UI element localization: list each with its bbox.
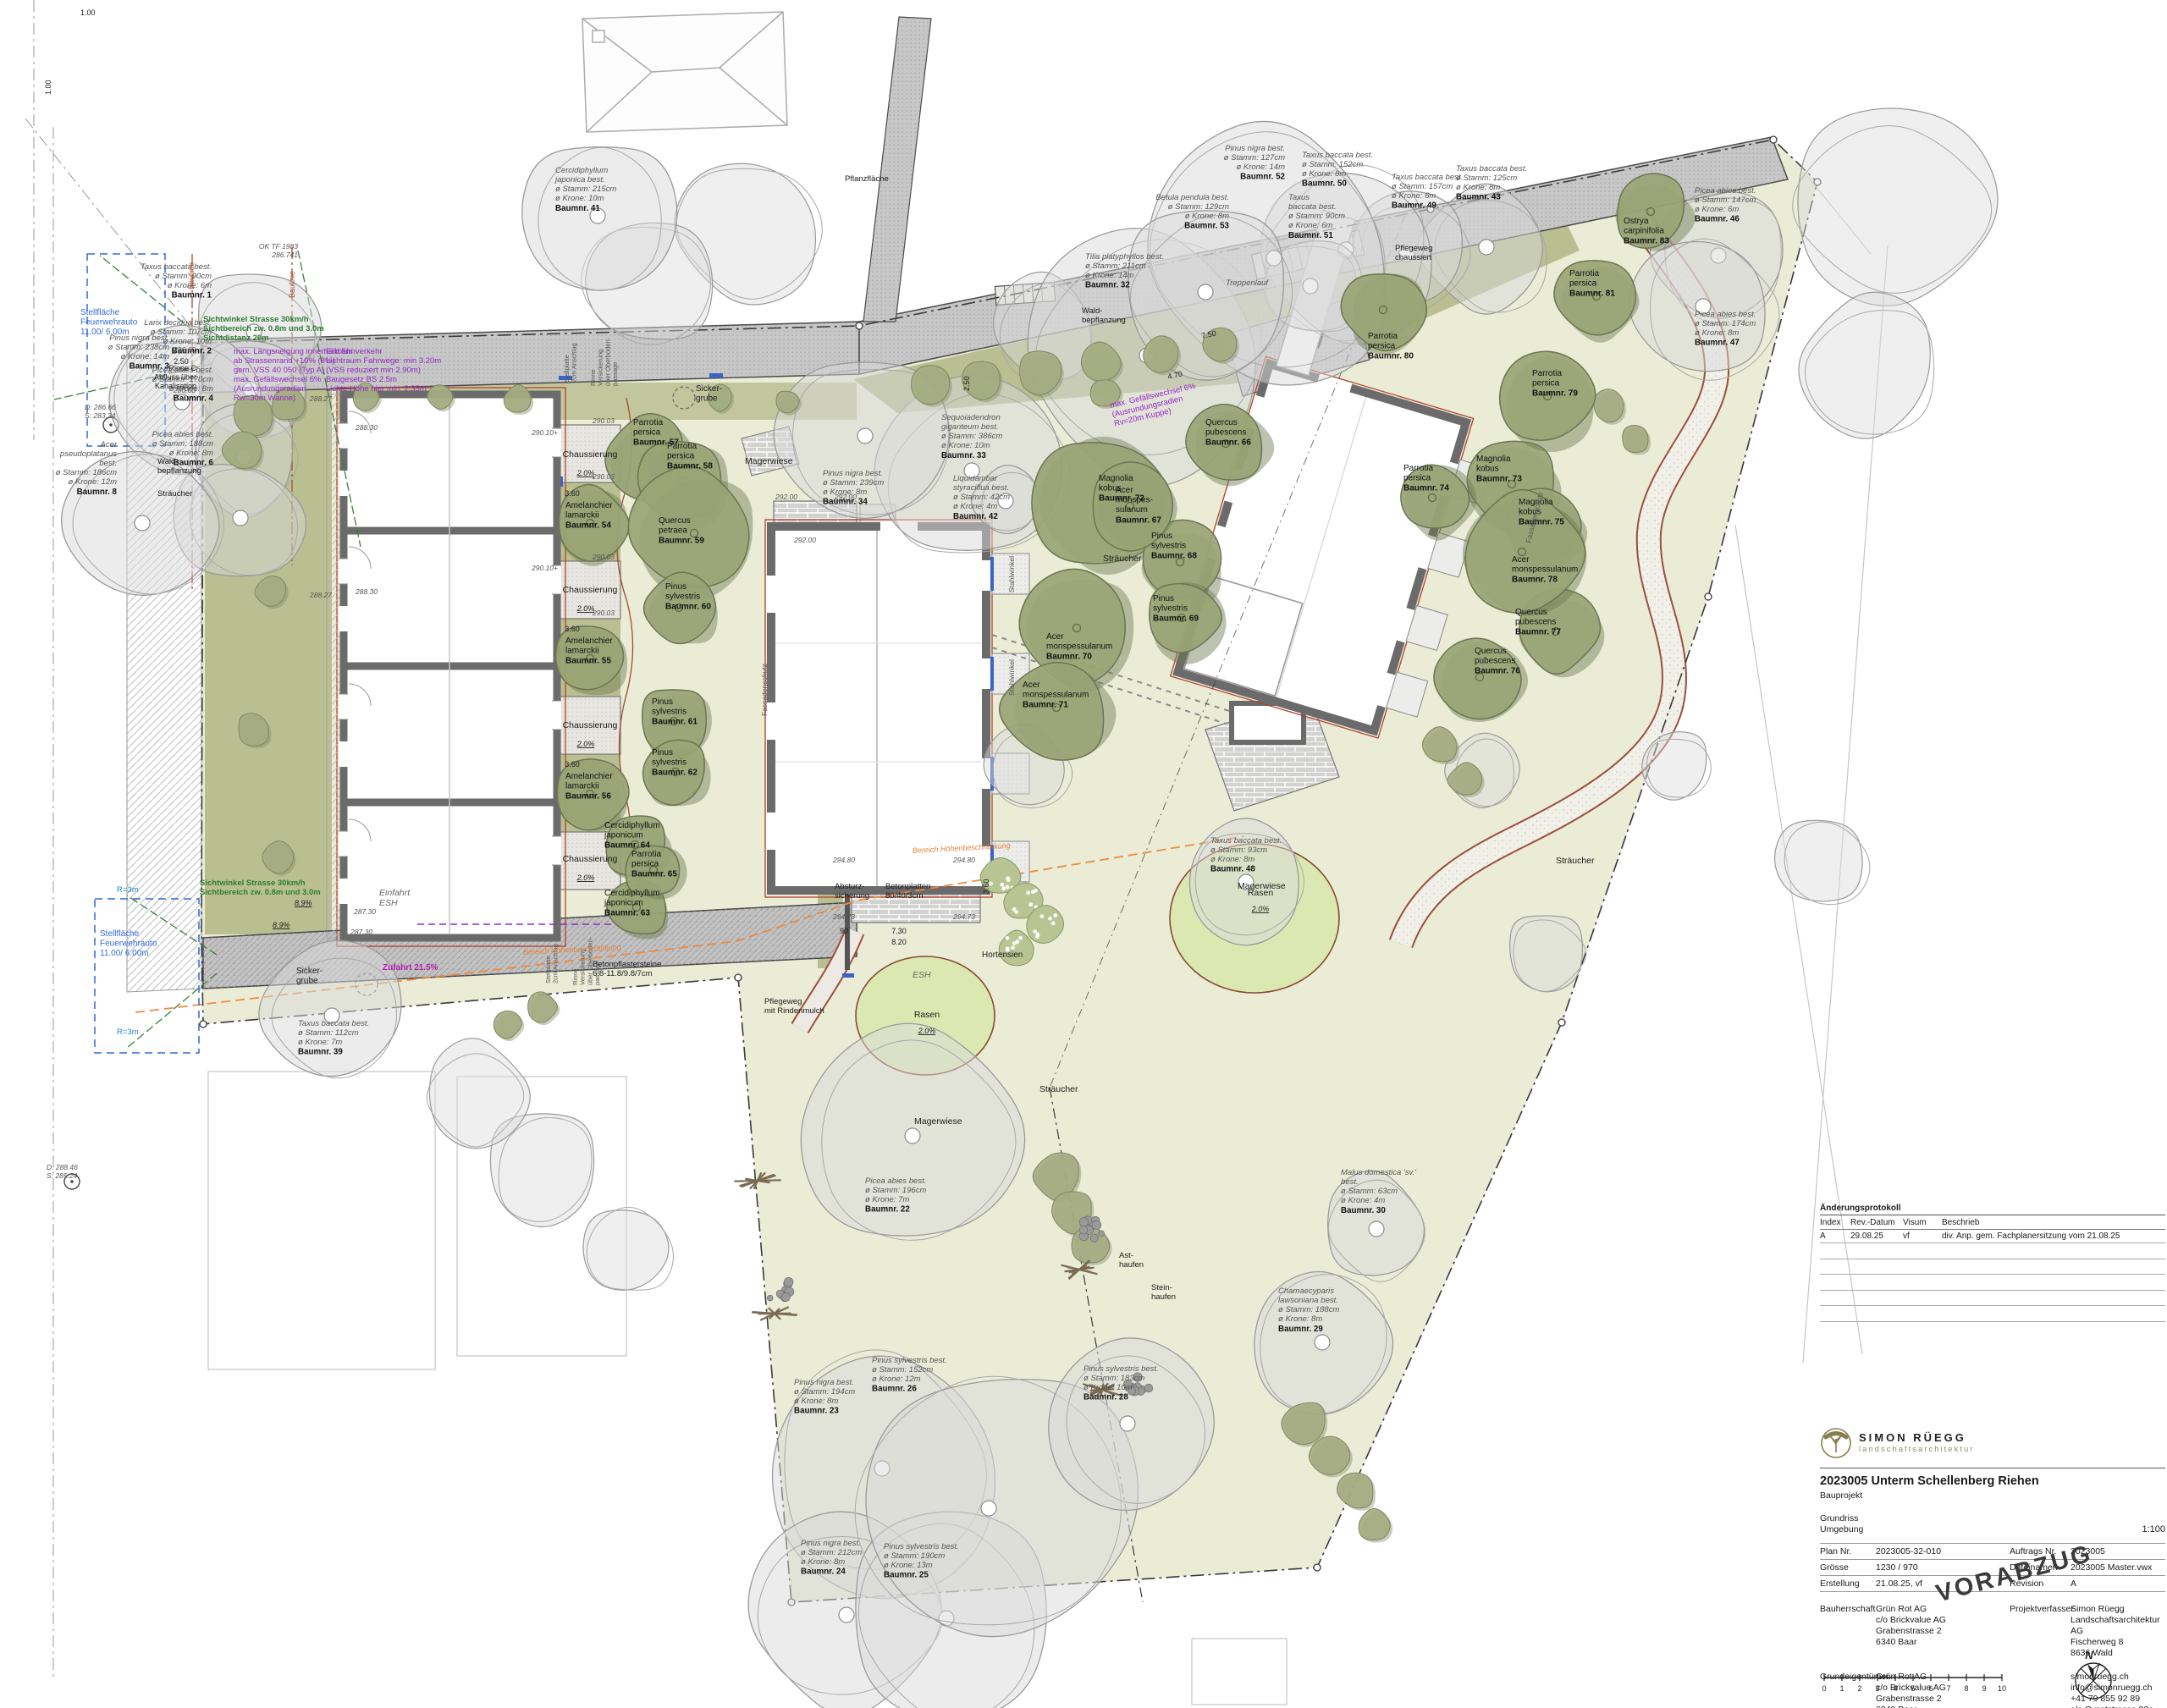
tree-number: Baumnr. 22	[865, 1205, 910, 1215]
meta-row: Plan Nr.2023005-32-010 Auftrags Nr.20230…	[1820, 1543, 2165, 1559]
annotation: R=3m	[117, 1028, 139, 1037]
scale-bar: 012345678910	[1820, 1672, 2015, 1694]
scale-tick-label: 1	[1839, 1684, 1844, 1693]
drawing-scale: 1:100	[2142, 1524, 2165, 1536]
tree-number: Baumnr. 46	[1695, 215, 1740, 224]
tree-number: Baumnr. 8	[77, 488, 118, 497]
annotation: 2.0%	[1251, 905, 1270, 913]
tree-label: Parrotiapersica	[1368, 332, 1398, 351]
tree-number: Baumnr. 23	[794, 1407, 839, 1416]
annotation: 2.0%	[576, 740, 595, 748]
existing-tree-crown	[1793, 108, 1998, 306]
tree-number: Baumnr. 69	[1153, 614, 1199, 624]
scale-tick-label: 4	[1893, 1684, 1897, 1693]
annotation: 287.30	[350, 928, 372, 936]
tree-label: Quercuspetraea	[659, 516, 691, 536]
tree-number: Baumnr. 1	[172, 291, 212, 300]
annotation: 1.00	[80, 8, 96, 17]
tree-number: Baumnr. 67	[1116, 515, 1161, 525]
annotation: 294.80	[832, 856, 855, 864]
annotation: Sträucher	[1039, 1084, 1078, 1094]
annotation: 292.00	[793, 536, 816, 544]
annotation: 90	[840, 927, 848, 935]
tree-number: Baumnr. 64	[604, 841, 650, 851]
annotation: 3.60	[565, 489, 580, 498]
annotation: 2.50	[962, 376, 971, 391]
existing-tree-crown	[1799, 292, 1934, 438]
tree-label: Parrotiapersica	[1532, 369, 1562, 388]
annotation: Chaussierung	[563, 720, 618, 730]
tree-number: Baumnr. 56	[565, 792, 611, 802]
tree-number: Baumnr. 83	[1624, 237, 1669, 246]
scale-tick-label: 2	[1857, 1684, 1861, 1693]
shrub	[1359, 1508, 1392, 1542]
revision-log-empty-row	[1820, 1291, 2165, 1307]
tree-number: Baumnr. 66	[1205, 438, 1251, 448]
tree-label: Parrotiapersica	[1403, 464, 1433, 483]
revision-log-empty-row	[1820, 1306, 2165, 1322]
site-plan-page: Taxus baccata best.ø Stamm: 90cmø Krone:…	[0, 0, 2167, 1708]
annotation: 290.03	[592, 416, 615, 425]
annotation: 294.80	[952, 856, 975, 864]
tree-number: Baumnr. 43	[1456, 193, 1501, 202]
annotation: Fassadenschutz	[760, 664, 769, 716]
annotation: 287.30	[353, 907, 376, 916]
tree-number: Baumnr. 68	[1151, 552, 1197, 561]
annotation: 286.60	[173, 345, 196, 354]
existing-tree-crown	[1775, 820, 1870, 904]
annotation: Sträucher	[157, 489, 192, 499]
annotation: Chaussierung	[563, 449, 618, 460]
logo: SIMON RÜEGG landschaftsarchitektur	[1820, 1427, 2165, 1459]
revision-log-empty-row	[1820, 1275, 2165, 1291]
annotation: 288.30	[355, 587, 378, 596]
annotation: 3.60	[565, 760, 580, 769]
tree-number: Baumnr. 48	[1210, 865, 1255, 874]
logo-tree-icon	[1820, 1427, 1852, 1459]
building-rowhouses	[327, 388, 565, 946]
annotation: Stahlwinkel	[1007, 556, 1016, 592]
svg-text:N: N	[2085, 1649, 2093, 1661]
tree-number: Baumnr. 70	[1046, 653, 1092, 662]
tree-number: Baumnr. 75	[1519, 518, 1564, 527]
tree-number: Baumnr. 73	[1476, 475, 1522, 484]
tree-number: Baumnr. 65	[631, 870, 677, 879]
annotation: Chaussierung	[563, 854, 618, 864]
tree-number: Baumnr. 25	[884, 1571, 929, 1580]
scale-tick-label: 8	[1964, 1684, 1968, 1693]
tree-number: Baumnr. 55	[565, 657, 611, 666]
annotation: ESH	[913, 970, 931, 980]
revision-log-row: A 29.08.25 vf div. Anp. gem. Fachplaners…	[1820, 1230, 2165, 1244]
tree-number: Baumnr. 30	[1341, 1206, 1386, 1215]
tree-number: Baumnr. 4	[174, 394, 214, 404]
scale-tick-label: 0	[1822, 1684, 1826, 1693]
tree-number: Baumnr. 41	[555, 204, 600, 213]
annotation: 1.00	[44, 80, 52, 95]
shrub	[494, 1011, 524, 1041]
annotation: Magerwiese	[914, 1116, 962, 1127]
annotation: D: 288.46S: 285.24	[47, 1163, 78, 1180]
tree-number: Baumnr. 72	[1099, 494, 1144, 504]
tree-label: Pinus nigra best.ø Stamm: 238cmø Krone: …	[108, 333, 169, 361]
annotation: Treppenlauf	[1226, 278, 1269, 288]
tree-number: Baumnr. 52	[1240, 173, 1285, 182]
annotation: Stein-haufen	[1151, 1283, 1176, 1302]
project-phase: Bauprojekt	[1820, 1490, 2165, 1501]
tree-number: Baumnr. 79	[1532, 389, 1578, 399]
annotation: Chaussierung	[563, 585, 618, 595]
tree-label: Parrotiapersica	[667, 442, 697, 461]
annotation: Betonpflastersteine6.8-11.8/9.8/7cm	[593, 960, 661, 978]
annotation: 3.60	[982, 879, 990, 894]
tree-number: Baumnr. 54	[565, 521, 611, 531]
drawing-title: Grundriss	[1820, 1513, 1863, 1524]
tree-number: Baumnr. 76	[1475, 667, 1520, 676]
annotation: 294.73	[952, 912, 975, 921]
annotation: Baulinie	[187, 262, 196, 289]
annotation: 8.9%	[273, 921, 290, 929]
annotation: 292.00	[775, 493, 797, 501]
annotation: Magerwiese	[745, 456, 793, 466]
annotation: Sichtwinkel Strasse 30km/hSichtbereich z…	[200, 879, 321, 897]
tree-label: Acerpseudoplatanusbest.ø Stamm: 186cmø K…	[56, 440, 118, 487]
tree-number: Baumnr. 33	[941, 451, 986, 460]
annotation: Rasen	[914, 1010, 940, 1020]
annotation: 290.03	[592, 609, 615, 617]
scale-tick-label: 5	[1911, 1684, 1915, 1693]
scale-tick-label: 7	[1946, 1684, 1950, 1693]
annotation: Pflanzfläche	[845, 174, 889, 184]
north-arrow: N	[2064, 1649, 2123, 1703]
annotation: OK TF 1983286.741	[259, 242, 298, 259]
annotation: 290.03	[592, 472, 615, 481]
tree-number: Baumnr. 24	[801, 1568, 846, 1577]
annotation: 288.27	[309, 394, 332, 403]
tree-number: Baumnr. 78	[1512, 576, 1558, 585]
annotation: Baulinie	[288, 271, 296, 298]
annotation: 294.73	[832, 912, 855, 921]
annotation: 292.00	[834, 493, 857, 501]
tree-number: Baumnr. 50	[1302, 179, 1347, 189]
drawing-subtitle: Umgebung	[1820, 1524, 1863, 1535]
scale-tick-label: 9	[1982, 1684, 1986, 1693]
tree-number: Baumnr. 53	[1184, 222, 1229, 231]
annotation: 7.30	[891, 927, 907, 935]
tree-number: Baumnr. 29	[1278, 1325, 1323, 1334]
tree-label: Parrotiapersica	[631, 850, 661, 869]
revision-log-title: Änderungsprotokoll	[1820, 1204, 2165, 1215]
tree-number: Baumnr. 49	[1392, 201, 1436, 211]
annotation: Rasen	[1248, 888, 1274, 898]
annotation: 8.9%	[295, 899, 312, 907]
tree-number: Baumnr. 42	[953, 512, 998, 521]
revision-log: Änderungsprotokoll Index Rev.-Datum Visu…	[1820, 1204, 2165, 1322]
annotation: Absturz-sicherung	[835, 882, 869, 901]
scale-tick-label: 3	[1875, 1684, 1879, 1693]
scale-tick-label: 6	[1928, 1684, 1933, 1693]
tree-label: Taxus baccata best.ø Stamm: 125cmø Krone…	[1456, 164, 1527, 192]
annotation: 3.60	[565, 625, 580, 633]
annotation: R=3m	[117, 885, 139, 895]
annotation: Stahlwinkel	[1007, 659, 1016, 696]
tree-number: Baumnr. 47	[1695, 339, 1740, 348]
tree-number: Baumnr. 74	[1403, 484, 1449, 493]
annotation: 2.0%	[918, 1027, 936, 1035]
tree-label: Taxus baccata best.ø Stamm: 90cmø Krone:…	[141, 262, 212, 290]
tree-number: Baumnr. 32	[1085, 281, 1130, 290]
annotation: Sträucher	[1556, 856, 1595, 866]
tree-number: Baumnr. 26	[872, 1385, 917, 1394]
annotation: 290.03	[592, 553, 615, 561]
tree-number: Baumnr. 60	[665, 603, 711, 612]
tree-number: Baumnr. 63	[604, 909, 650, 918]
tree-number: Baumnr. 71	[1023, 701, 1068, 710]
revision-log-empty-rows	[1820, 1243, 2165, 1322]
revision-log-header: Index Rev.-Datum Visum Beschrieb	[1820, 1215, 2165, 1230]
annotation: 2.0%	[576, 873, 595, 882]
annotation: 8.20	[891, 938, 907, 946]
tree-number: Baumnr. 39	[298, 1048, 343, 1057]
tree-label: Taxus baccata best.ø Stamm: 157cmø Krone…	[1392, 173, 1463, 201]
tree-number: Baumnr. 58	[667, 462, 713, 471]
scale-tick-label: 10	[1998, 1684, 2006, 1693]
neighbour-house	[582, 12, 787, 132]
project-title: 2023005 Unterm Schellenberg Riehen	[1820, 1474, 2165, 1489]
tree-label: Parrotiapersica	[633, 418, 663, 438]
annotation: 290.10+	[531, 428, 558, 437]
annotation: Sträucher	[1103, 554, 1142, 564]
annotation: StellflächeFeuerwehrauto11.00/ 6.00m	[80, 308, 138, 337]
revision-log-empty-row	[1820, 1243, 2165, 1259]
tree-number: Baumnr. 61	[652, 718, 698, 727]
tree-number: Baumnr. 77	[1515, 628, 1561, 637]
annotation: 288.30	[355, 423, 378, 432]
annotation: D: 286.66S: 283.34	[85, 403, 116, 420]
annotation: 288.27	[309, 591, 332, 599]
logo-name: SIMON RÜEGG	[1859, 1431, 1974, 1445]
tree-number: Baumnr. 51	[1288, 231, 1333, 240]
tree-label: Parrotiapersica	[1569, 269, 1599, 289]
annotation: Hortensien	[982, 950, 1023, 960]
annotation: 290.10+	[531, 564, 558, 572]
divider	[1820, 1468, 2165, 1468]
existing-tree-crown	[583, 1207, 673, 1290]
tree-label: Taxus baccata best.ø Stamm: 152cmø Krone…	[1302, 151, 1373, 179]
revision-log-empty-row	[1820, 1259, 2165, 1275]
tree-number: Baumnr. 59	[659, 537, 704, 546]
tree-number: Baumnr. 81	[1569, 289, 1615, 299]
tree-number: Baumnr. 28	[1083, 1393, 1128, 1402]
shrub	[528, 992, 560, 1025]
annotation: Pflegewegchaussiert	[1395, 244, 1432, 262]
logo-subtitle: landschaftsarchitektur	[1859, 1445, 1974, 1455]
tree-number: Baumnr. 62	[652, 769, 698, 778]
annotation: Zufahrt 21.5%	[383, 963, 438, 972]
tree-number: Baumnr. 80	[1368, 352, 1414, 361]
